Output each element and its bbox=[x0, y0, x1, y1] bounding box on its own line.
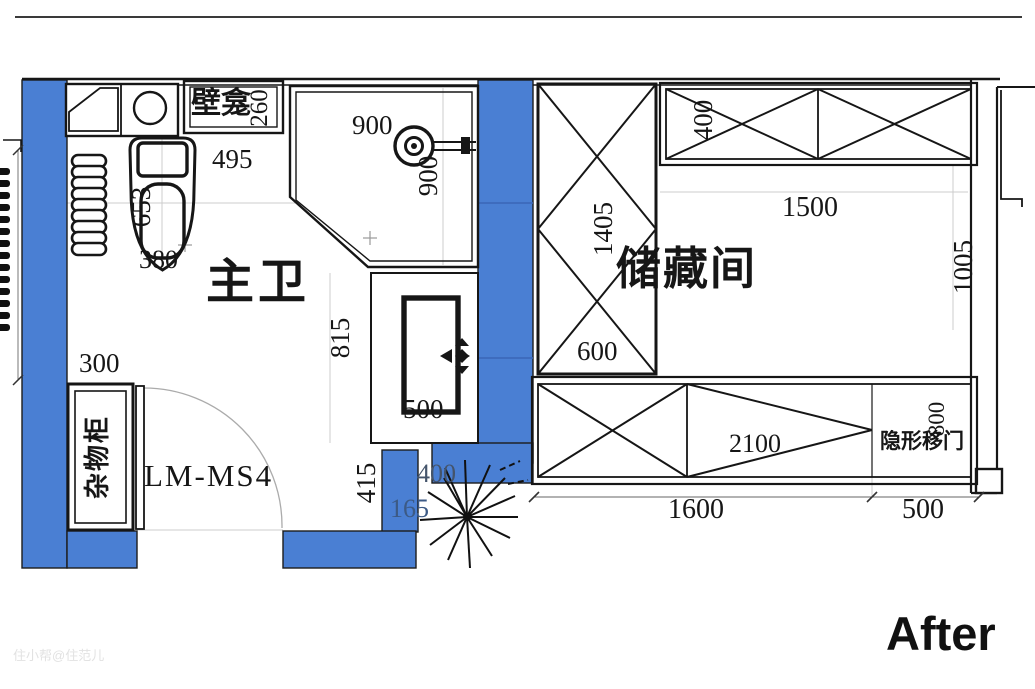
clipped-left-dimension bbox=[0, 145, 23, 385]
top-divider-line bbox=[15, 16, 1022, 18]
floor-plan-canvas: 主卫 壁龛 260 495 653 380 900 900 815 500 30… bbox=[0, 0, 1035, 689]
niche-label: 壁龛 bbox=[191, 89, 251, 119]
sliding-door-label: 隐形移门 bbox=[880, 431, 964, 452]
dim-wall-step-b: 165 bbox=[390, 496, 429, 522]
dim-washer-width: 500 bbox=[403, 396, 444, 423]
towel-radiator-icon bbox=[72, 155, 106, 255]
dim-tall-cabinet-height: 1405 bbox=[590, 189, 618, 269]
misc-cabinet-label: 杂物柜 bbox=[85, 402, 115, 512]
dim-wall-step-a: 400 bbox=[417, 461, 456, 487]
dim-bottom-left: 1600 bbox=[668, 496, 724, 524]
dim-bottom-cabinet-width: 2100 bbox=[729, 431, 781, 457]
after-caption: After bbox=[886, 610, 996, 657]
wall-left bbox=[22, 80, 67, 568]
dim-bottom-right: 500 bbox=[902, 496, 944, 524]
wall-between-rooms bbox=[478, 80, 533, 463]
dim-shower-depth: 900 bbox=[415, 136, 443, 216]
dim-door-side: 415 bbox=[353, 443, 381, 523]
dim-top-cabinet-depth: 400 bbox=[690, 80, 718, 160]
dim-cabinet-width: 300 bbox=[79, 350, 120, 377]
dim-room-width: 1500 bbox=[782, 194, 838, 222]
storage-label: 储藏间 bbox=[616, 246, 757, 291]
vanity-counter bbox=[66, 84, 178, 136]
dim-toilet-length: 653 bbox=[128, 167, 156, 247]
cross-arrows-icon bbox=[440, 338, 470, 374]
floor-plan-linework bbox=[0, 0, 1035, 689]
watermark: 住小帮@住范儿 bbox=[13, 649, 104, 662]
door-model-label: LM-MS4 bbox=[144, 460, 273, 491]
dim-toilet-width: 380 bbox=[139, 247, 178, 273]
dim-shower-width: 900 bbox=[352, 112, 393, 139]
dim-tall-cabinet-width: 600 bbox=[577, 338, 618, 365]
dim-washer-height: 815 bbox=[327, 298, 355, 378]
wall-bottom-right bbox=[283, 531, 416, 568]
wall-bottom-left bbox=[67, 531, 137, 568]
dim-room-depth: 1005 bbox=[950, 227, 978, 307]
dim-counter-width: 495 bbox=[212, 146, 253, 173]
dim-niche-depth: 260 bbox=[247, 68, 275, 148]
bathroom-label: 主卫 bbox=[206, 258, 310, 306]
